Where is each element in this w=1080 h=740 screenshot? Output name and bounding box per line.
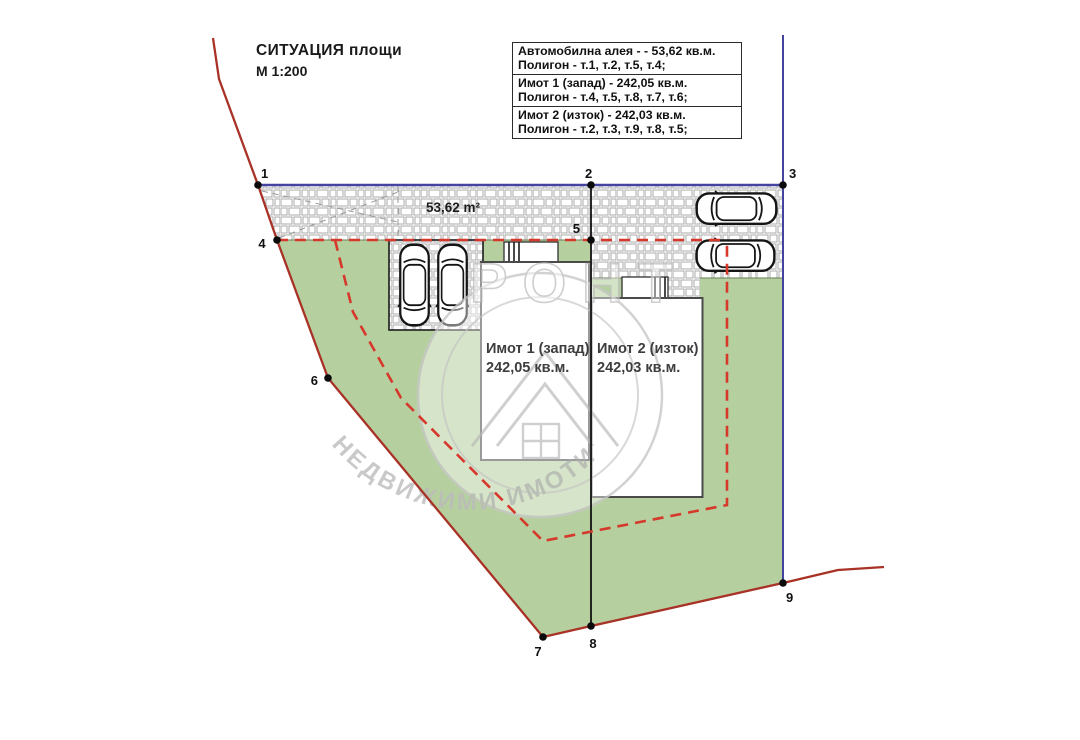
survey-point-8: [587, 622, 595, 630]
survey-point-7: [539, 633, 547, 641]
car-icon: [697, 238, 775, 273]
legend-area-text: Имот 2 (изток) - 242,03 кв.м.: [518, 108, 736, 122]
legend-row-alley: Автомобилна алея - - 53,62 кв.м. Полигон…: [513, 43, 741, 75]
legend-polygon-text: Полигон - т.1, т.2, т.5, т.4;: [518, 58, 736, 72]
lot2-area-label: 242,03 кв.м.: [597, 360, 680, 376]
legend-polygon-text: Полигон - т.2, т.3, т.9, т.8, т.5;: [518, 122, 736, 136]
survey-point-5: [587, 236, 595, 244]
legend-table: Автомобилна алея - - 53,62 кв.м. Полигон…: [512, 42, 742, 139]
survey-point-9: [779, 579, 787, 587]
point-label: 3: [789, 166, 796, 181]
legend-row-lot1: Имот 1 (запад) - 242,05 кв.м. Полигон - …: [513, 75, 741, 107]
survey-point-4: [273, 236, 281, 244]
point-label: 1: [261, 166, 268, 181]
survey-point-1: [254, 181, 262, 189]
legend-area-text: Имот 1 (запад) - 242,05 кв.м.: [518, 76, 736, 90]
legend-area-text: Автомобилна алея - - 53,62 кв.м.: [518, 44, 736, 58]
point-label: 2: [585, 166, 592, 181]
survey-point-2: [587, 181, 595, 189]
point-label: 4: [258, 236, 266, 251]
page-title: СИТУАЦИЯ площи: [256, 42, 402, 60]
survey-point-6: [324, 374, 332, 382]
lot1-area-label: 242,05 кв.м.: [486, 360, 569, 376]
alley-area-label: 53,62 m²: [426, 200, 481, 215]
point-label: 7: [534, 644, 541, 659]
watermark-top-text: РОНТ: [470, 251, 689, 314]
point-label: 6: [311, 373, 318, 388]
legend-polygon-text: Полигон - т.4, т.5, т.8, т.7, т.6;: [518, 90, 736, 104]
car-icon: [398, 245, 431, 326]
point-label: 5: [573, 221, 580, 236]
lot2-name-label: Имот 2 (изток): [597, 341, 699, 357]
survey-point-3: [779, 181, 787, 189]
point-label: 8: [589, 636, 596, 651]
scale-label: М 1:200: [256, 63, 402, 79]
car-icon: [697, 191, 777, 226]
legend-row-lot2: Имот 2 (изток) - 242,03 кв.м. Полигон - …: [513, 107, 741, 138]
title-block: СИТУАЦИЯ площи М 1:200: [256, 42, 402, 79]
site-plan-page: РОНТ НЕДВИЖИМИ ИМОТИ: [0, 0, 1080, 740]
lot1-name-label: Имот 1 (запад): [486, 341, 590, 357]
point-label: 9: [786, 590, 793, 605]
